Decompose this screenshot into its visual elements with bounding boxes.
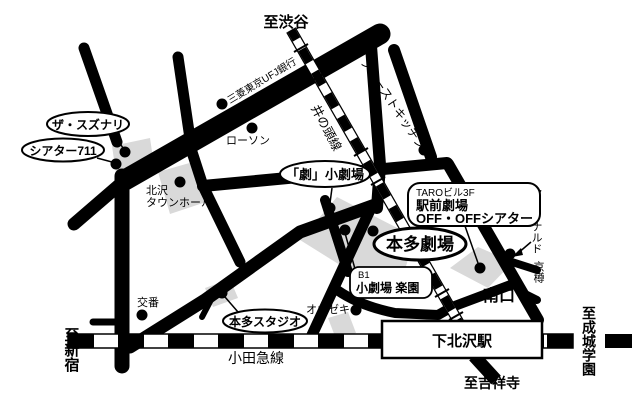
label-taro-building: TAROビル3F 駅前劇場 OFF・OFFシアター bbox=[408, 183, 540, 226]
label-suzunari: ザ・スズナリ bbox=[47, 112, 129, 136]
dot-suzunari bbox=[120, 147, 131, 158]
dot-ekimae-theater bbox=[475, 263, 486, 274]
map-svg: 下北沢駅 至渋谷 茶沢通り 三菱東京UFJ銀行 ローソン 井の頭線 ファーストキ… bbox=[0, 0, 640, 416]
minamiguchi-label: 南口 bbox=[483, 286, 515, 305]
theater711-text: シアター711 bbox=[29, 144, 97, 158]
dot-lawson bbox=[247, 123, 258, 134]
dot-mcdonalds bbox=[505, 249, 516, 260]
townhall-label-line2: タウンホール bbox=[146, 196, 212, 209]
dot-bank bbox=[217, 99, 228, 110]
taro-text-line3: OFF・OFFシアター bbox=[416, 211, 533, 226]
label-geki-theater: 「劇」小劇場 bbox=[280, 161, 370, 187]
dot-townhall bbox=[175, 177, 186, 188]
honda-studio-text: 本多スタジオ bbox=[229, 314, 301, 329]
road-townhall-street bbox=[178, 57, 240, 262]
lawson-label: ローソン bbox=[226, 135, 270, 147]
dot-koban bbox=[137, 310, 148, 321]
townhall-label-line1: 北沢 bbox=[146, 183, 168, 197]
to-shinjuku-label: 至新宿 bbox=[63, 327, 80, 373]
dot-ozeki bbox=[351, 305, 362, 316]
to-shibuya-label: 至渋谷 bbox=[263, 13, 309, 31]
dot-theater711 bbox=[111, 159, 122, 170]
label-rakuen: B1 小劇場 楽園 bbox=[350, 267, 432, 298]
label-honda-studio: 本多スタジオ bbox=[223, 310, 307, 333]
odakyu-line-label: 小田急線 bbox=[228, 350, 284, 366]
rakuen-text-name: 小劇場 楽園 bbox=[356, 280, 419, 295]
dot-honda-east bbox=[368, 226, 379, 237]
honda-theater-text: 本多劇場 bbox=[386, 234, 454, 254]
shimokitazawa-access-map: 下北沢駅 至渋谷 茶沢通り 三菱東京UFJ銀行 ローソン 井の頭線 ファーストキ… bbox=[0, 0, 640, 416]
label-honda-theater: 本多劇場 bbox=[374, 228, 466, 260]
koban-label: 交番 bbox=[137, 295, 159, 309]
odakyu-line-east-segment bbox=[605, 334, 632, 348]
to-kichijoji-label: 至吉祥寺 bbox=[464, 375, 520, 391]
to-seijogakuen-label: 至成城学園 bbox=[581, 306, 597, 377]
ozeki-label: オオゼキ bbox=[306, 303, 350, 316]
dot-geki-theater bbox=[325, 203, 336, 214]
label-theater711: シアター711 bbox=[22, 139, 104, 162]
odakyu-line-railway bbox=[68, 334, 632, 348]
rakuen-text-b1: B1 bbox=[358, 270, 370, 281]
station-label: 下北沢駅 bbox=[432, 332, 493, 350]
kyotaru-label: 京樽 bbox=[532, 260, 545, 284]
geki-theater-text: 「劇」小劇場 bbox=[286, 167, 364, 182]
suzunari-text: ザ・スズナリ bbox=[52, 117, 124, 132]
shimokitazawa-station: 下北沢駅 bbox=[382, 321, 542, 358]
